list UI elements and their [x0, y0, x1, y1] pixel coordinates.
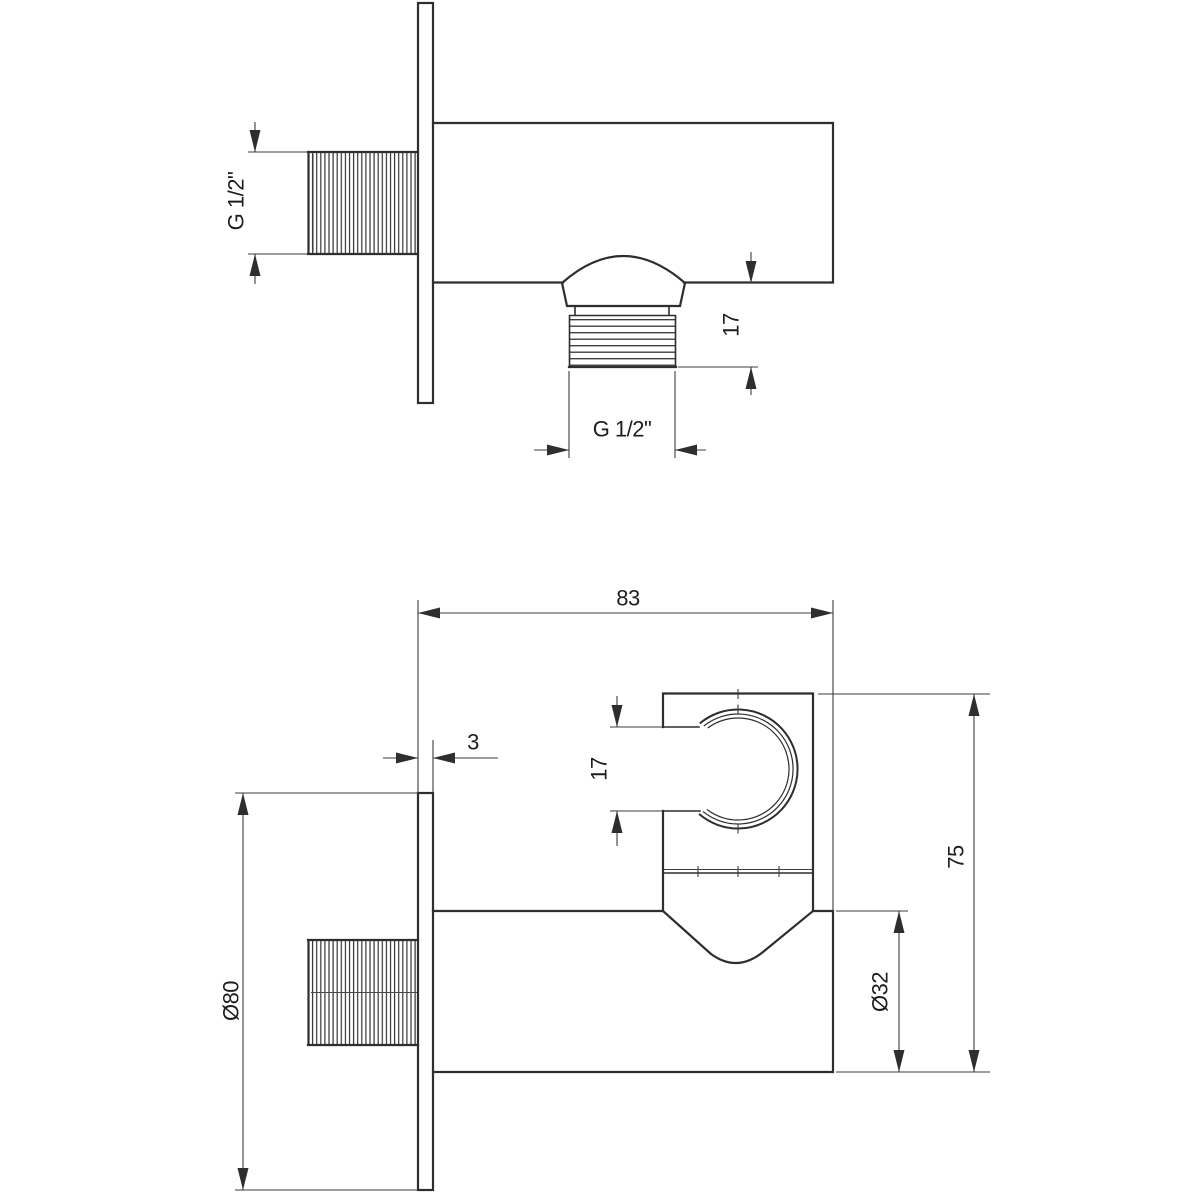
- top-view: G 1/2" 17 G 1/2": [224, 3, 834, 458]
- swivel-joint: [663, 911, 813, 963]
- dim-total-depth: 83: [418, 586, 833, 912]
- dim-label-body-diameter: Ø32: [868, 972, 893, 1012]
- technical-drawing: G 1/2" 17 G 1/2": [0, 0, 1200, 1200]
- dim-outlet-length: 17: [678, 252, 758, 395]
- outlet-dome-cap: [562, 256, 685, 306]
- dim-label-outlet-thread: G 1/2": [593, 417, 652, 442]
- dim-holder-opening: 17: [587, 696, 664, 846]
- dim-label-inlet-thread: G 1/2": [224, 172, 249, 231]
- outlet-neck: [575, 306, 669, 315]
- inlet-thread-top-view: [308, 152, 418, 254]
- dim-body-diameter: Ø32: [836, 911, 990, 1072]
- dim-total-height: 75: [818, 694, 990, 1072]
- wall-plate-top-view: [418, 3, 433, 403]
- outlet-thread-top-view: [569, 315, 676, 367]
- dim-plate-thickness: 3: [383, 730, 498, 794]
- drawing-canvas: G 1/2" 17 G 1/2": [0, 0, 1200, 1200]
- dim-label-plate-diameter: Ø80: [219, 981, 244, 1021]
- dim-outlet-thread: G 1/2": [534, 371, 706, 458]
- inlet-thread-bottom-view: [308, 940, 418, 1045]
- holder-bracket: [663, 689, 813, 963]
- holder-seam: [663, 866, 813, 877]
- bottom-view: 83 3 17 Ø80 Ø32: [219, 586, 991, 1191]
- dim-label-outlet-length: 17: [719, 313, 744, 337]
- wall-plate-bottom-view: [418, 793, 433, 1190]
- holder-ring: [699, 709, 798, 828]
- dim-label-plate-thickness: 3: [467, 730, 479, 755]
- dim-label-total-depth: 83: [616, 586, 640, 611]
- valve-body-bottom-view: [433, 911, 833, 1072]
- dim-label-total-height: 75: [944, 845, 969, 869]
- valve-body-top-view: [433, 123, 833, 283]
- dim-label-holder-opening: 17: [587, 757, 612, 781]
- dim-inlet-thread: G 1/2": [224, 122, 309, 284]
